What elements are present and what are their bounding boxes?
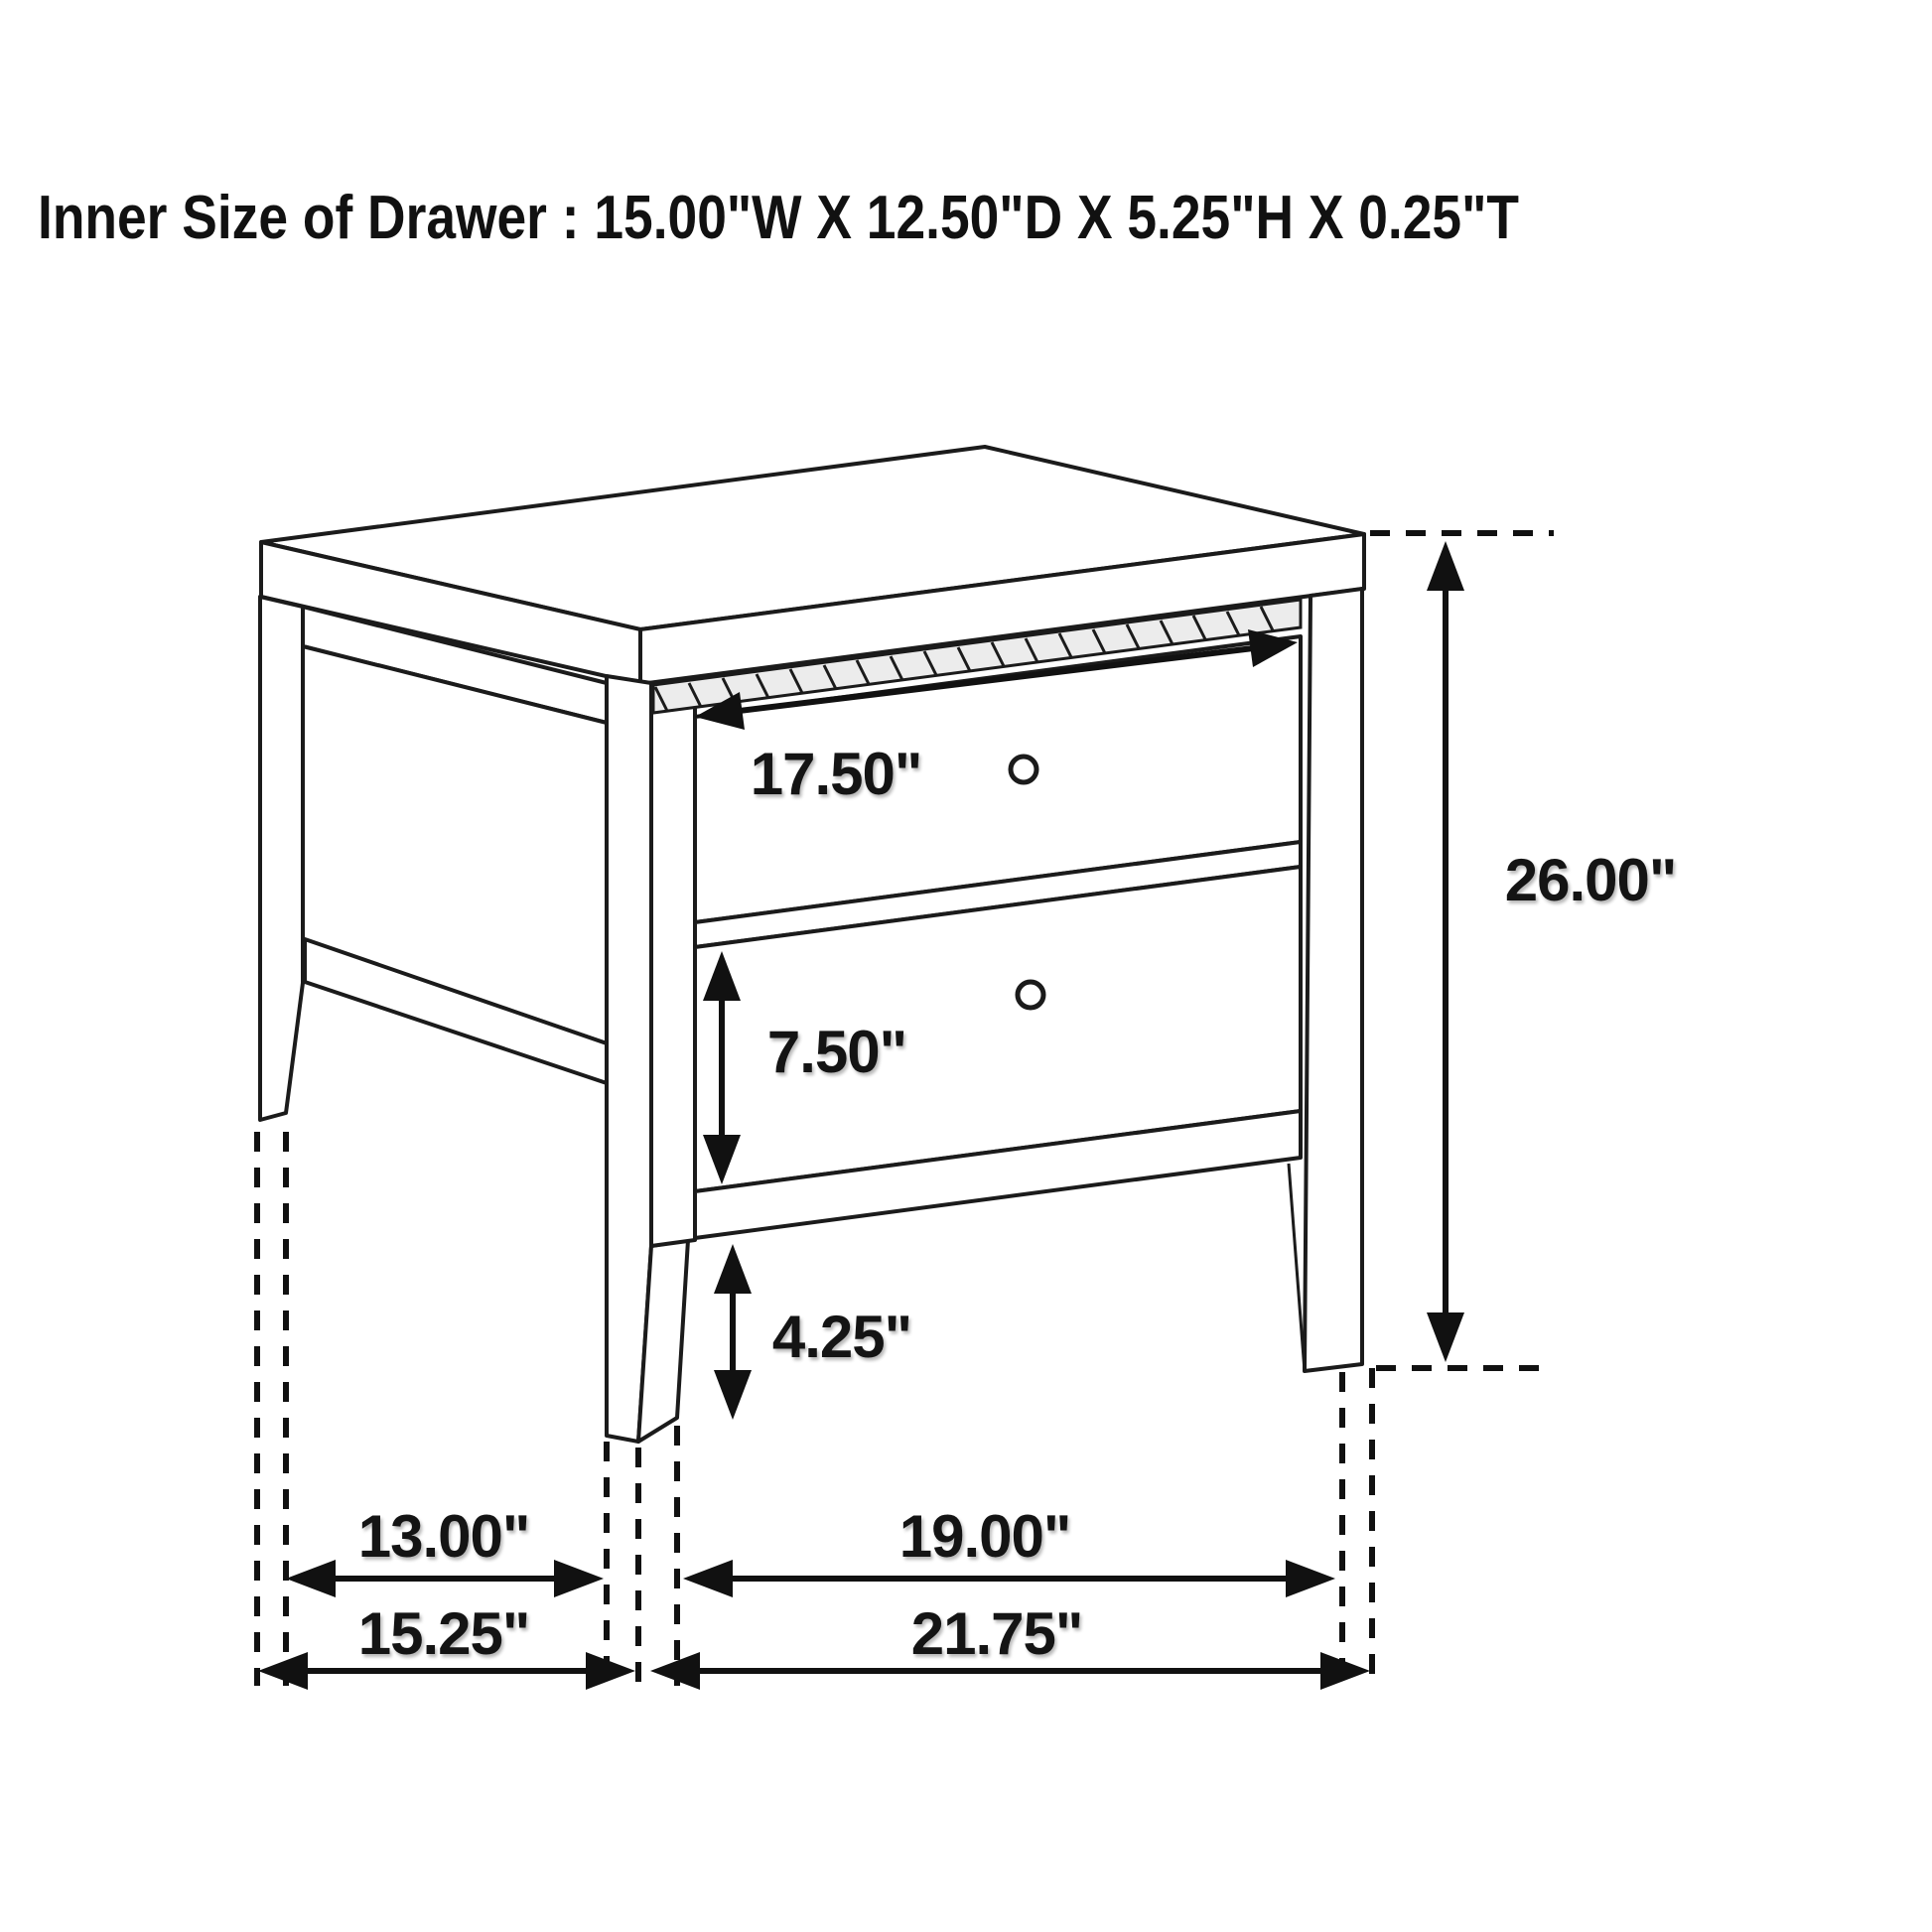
nightstand-diagram-svg: Inner Size of Drawer : 15.00"W X 12.50"D… [0, 0, 1932, 1932]
dimension-diagram: Inner Size of Drawer : 15.00"W X 12.50"D… [0, 0, 1932, 1932]
drawer-stack [695, 636, 1301, 1238]
label-bottom-drawer-height: 7.50" [767, 1019, 906, 1085]
label-side-leg-spacing: 13.00" [358, 1503, 530, 1570]
drawer-1-knob [1011, 757, 1036, 782]
label-drawer-width: 17.50" [751, 741, 922, 807]
dim-overall-height [1427, 541, 1464, 1362]
nightstand-drawing [260, 447, 1364, 1442]
diagram-title: Inner Size of Drawer : 15.00"W X 12.50"D… [38, 184, 1519, 252]
dim-floor-clearance [714, 1244, 752, 1420]
left-side-panel [303, 607, 607, 1083]
drawer-2-knob [1018, 982, 1043, 1008]
front-right-leg-face [1305, 589, 1362, 1371]
front-right-foot-taper [1289, 1164, 1305, 1371]
label-floor-clearance: 4.25" [772, 1304, 911, 1370]
label-overall-depth: 15.25" [358, 1600, 530, 1667]
label-front-leg-spacing: 19.00" [899, 1503, 1071, 1570]
back-left-leg [260, 597, 303, 1120]
label-overall-height: 26.00" [1505, 847, 1677, 913]
front-left-stile [651, 683, 695, 1246]
label-overall-width: 21.75" [911, 1600, 1083, 1667]
